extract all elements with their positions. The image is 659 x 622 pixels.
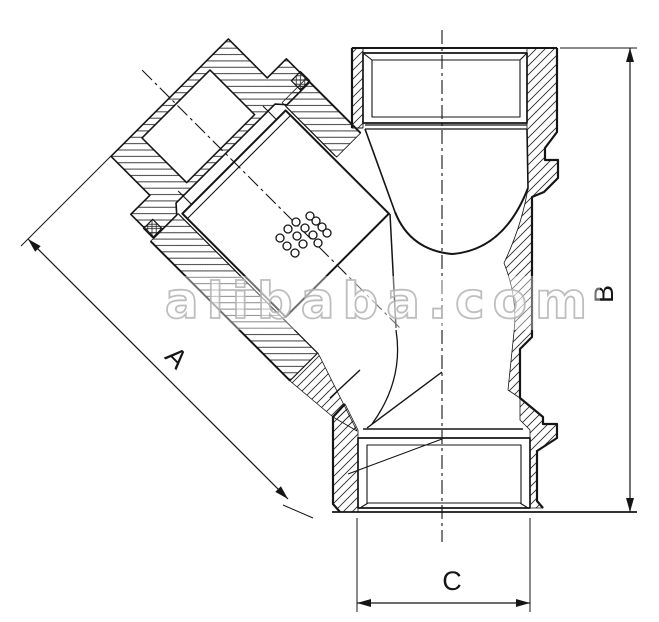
top-port-socket <box>363 53 527 129</box>
dim-a-label: A <box>159 341 193 375</box>
dim-a-extension-line <box>21 156 111 246</box>
dim-b-arrow-bottom <box>626 498 634 512</box>
dim-c-extension-lines <box>357 518 530 612</box>
dim-b-arrow-top <box>626 48 634 62</box>
dim-c-arrow-right <box>516 599 530 607</box>
drawing-canvas: A B C alibaba.com <box>0 0 659 622</box>
bowl-arc <box>395 188 528 254</box>
bottom-port-socket <box>358 429 530 508</box>
top-port-left-wall-hatch <box>352 48 363 128</box>
dim-a-tick <box>283 505 313 518</box>
dim-c-label: C <box>442 566 462 596</box>
watermark: alibaba.com <box>140 272 600 330</box>
dim-c-arrow-left <box>357 599 371 607</box>
watermark-text: alibaba.com <box>165 272 595 330</box>
dimension-c: C <box>357 518 530 612</box>
y-strainer-section-drawing: A B C alibaba.com <box>0 0 659 622</box>
